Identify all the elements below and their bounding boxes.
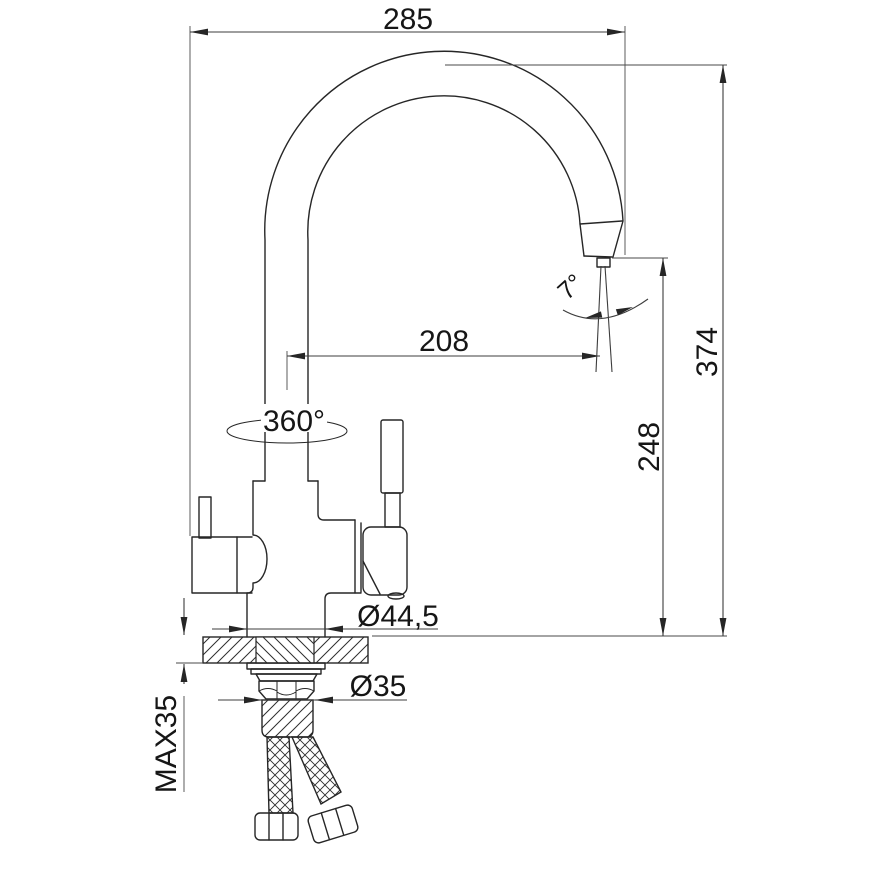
dimension-labels: 285 374 248 208 360° 7° Ø44,5 Ø35 MAX35 (150, 3, 724, 793)
label-base-diameter: Ø44,5 (357, 600, 439, 633)
right-joint-disc (355, 520, 361, 593)
label-overall-height: 374 (691, 327, 724, 377)
right-valve-foot (388, 593, 404, 599)
spout-joint-line (580, 221, 622, 224)
right-valve-body (363, 527, 407, 595)
right-handle-stem (385, 493, 400, 527)
label-outlet-angle: 7° (552, 269, 589, 306)
angle-line-tilted (605, 266, 612, 372)
hose-fitting-right (307, 804, 359, 844)
label-swivel-angle: 360° (263, 405, 325, 438)
aerator (597, 258, 610, 267)
dimension-lines (176, 26, 727, 792)
right-handle-knob (381, 420, 403, 493)
label-spout-outlet-height: 248 (633, 422, 666, 472)
right-valve-lever-line (363, 561, 380, 594)
body-bottom-right (325, 593, 361, 637)
left-valve-neck (237, 537, 252, 593)
label-spout-reach: 208 (419, 325, 469, 358)
flange-ring-1 (247, 663, 325, 669)
supply-hose-right (292, 737, 341, 804)
left-handle-knob (199, 497, 211, 538)
flange-ring-2 (251, 669, 321, 674)
angle-arrowhead-left (584, 311, 602, 321)
label-hole-diameter: Ø35 (350, 670, 407, 703)
supply-hose-left (267, 737, 293, 813)
hose-fitting-left (255, 813, 298, 840)
spout-inner-edge (308, 96, 584, 481)
faucet-technical-drawing: 285 374 248 208 360° 7° Ø44,5 Ø35 MAX35 (0, 0, 896, 892)
flange-collar (256, 674, 317, 681)
mounting-nut (259, 681, 314, 699)
angle-arc (563, 299, 648, 319)
installation-section (203, 637, 368, 844)
body-right-edge (318, 481, 355, 520)
left-valve-body (192, 537, 237, 593)
label-max-deck-thickness: MAX35 (150, 695, 183, 793)
mounting-nut-facets (259, 681, 314, 699)
body-left-edge (247, 481, 267, 637)
faucet-outline (192, 51, 623, 637)
threaded-shank (262, 700, 313, 737)
shank-through-hole (256, 637, 314, 663)
faucet-technical-drawing-page: 285 374 248 208 360° 7° Ø44,5 Ø35 MAX35 (0, 0, 896, 892)
spout-tip-edge (584, 256, 612, 257)
label-overall-width: 285 (383, 3, 433, 36)
